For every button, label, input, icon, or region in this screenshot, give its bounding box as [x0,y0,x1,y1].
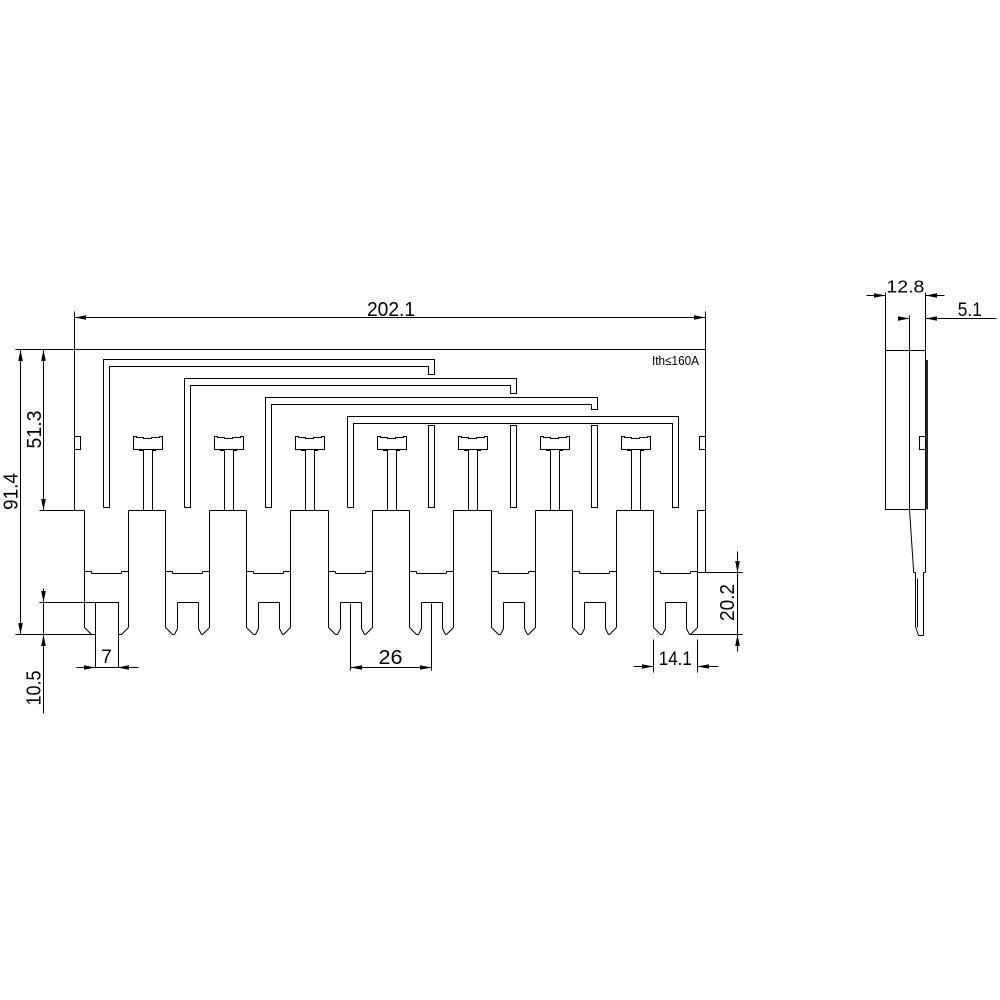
svg-text:51.3: 51.3 [24,411,46,449]
svg-text:14.1: 14.1 [659,648,692,670]
svg-text:7: 7 [101,647,112,668]
svg-text:10.5: 10.5 [24,671,46,706]
svg-text:26: 26 [379,646,403,669]
svg-text:12.8: 12.8 [886,277,924,297]
svg-text:5.1: 5.1 [958,300,982,321]
svg-text:20.2: 20.2 [717,584,739,621]
svg-text:202.1: 202.1 [367,298,415,321]
svg-text:91.4: 91.4 [1,473,23,510]
svg-text:Ith≤160A: Ith≤160A [652,353,699,368]
